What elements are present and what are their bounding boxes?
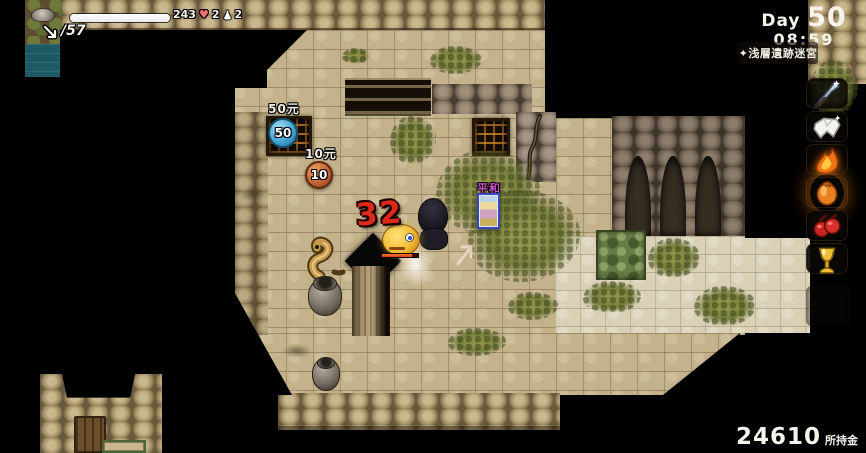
fish-mouth [389,247,405,250]
player-character[interactable] [412,196,454,256]
day-number: 50 [807,2,847,33]
potion-icon [223,9,232,21]
fish-eye [405,233,414,242]
water-tile [25,44,62,77]
fog-left-edge [0,0,25,453]
money-value: 24610 [736,424,821,450]
heart-count: 2 [212,8,220,21]
mossy-slab[interactable] [596,230,646,280]
red-gloves-icon [810,209,844,243]
floor-stain [240,188,266,202]
clay-pot[interactable] [308,278,342,316]
location-banner: ✦浅層遺跡迷宮 [738,42,818,64]
item-slot-lantern[interactable] [806,177,848,208]
arch-niche [695,156,721,236]
lantern-glow [810,174,844,212]
wall-bottom-strip [278,393,560,430]
golden-snake-statue[interactable] [306,232,348,280]
item-slot-sword[interactable] [806,78,848,109]
flame-icon [810,143,844,177]
gold-goblet-icon [810,242,844,276]
item-slot-goblet[interactable] [806,243,848,274]
broken-bowl[interactable] [31,8,55,22]
tarot-card-item[interactable] [477,193,500,229]
day-prefix: Day [761,11,800,31]
price-tag-50: 50元 [262,100,306,117]
fog-left-lower [25,77,62,373]
fog-top-right [545,0,745,118]
collapsed-trench [345,78,431,116]
item-slot-cloth[interactable] [806,111,848,142]
wooden-sign[interactable] [102,440,146,453]
wall-brown-patch [432,84,532,114]
pillar-shaft [352,266,390,336]
day-display: Day 50 [756,2,852,33]
floor-arrow-marking [454,240,476,268]
arched-wall [612,116,745,236]
heart-icon: ♥ [199,8,209,21]
hp-stats-row: 243 ♥ 2 2 [173,8,242,21]
money-display: 24610 所持金 [730,424,858,450]
price-tag-10: 10元 [301,145,341,162]
floor-engraving [806,286,850,326]
fog-top-left [60,30,235,335]
fog-step [235,30,267,88]
blue-coin-item[interactable]: 50 [268,118,298,148]
arch-niche [625,156,651,236]
potion-count: 2 [235,8,243,21]
item-slot-flame[interactable] [806,144,848,175]
lantern-icon [810,174,844,208]
coin-value: 10 [311,168,328,182]
clay-pot[interactable] [312,358,340,391]
copper-coin-item[interactable]: 10 [305,161,333,189]
ammo-count: /57 [61,23,86,39]
sword-icon [810,77,844,111]
floor-stain [282,344,312,358]
game-screen: 32 平和 50元 50 10元 10 243 ♥ 2 2 /57 Day 50… [0,0,866,453]
player-body [420,228,448,250]
hp-bar [70,14,170,22]
hp-value: 243 [173,8,196,21]
white-cloth-icon [810,110,844,144]
coin-value: 50 [275,126,292,140]
monster-hp-bar [381,253,419,258]
money-suffix: 所持金 [825,432,858,448]
arrow-ammo-icon [42,24,60,42]
arch-niche [660,156,686,236]
damage-number: 32 [355,194,405,233]
item-slot-gloves[interactable] [806,210,848,241]
